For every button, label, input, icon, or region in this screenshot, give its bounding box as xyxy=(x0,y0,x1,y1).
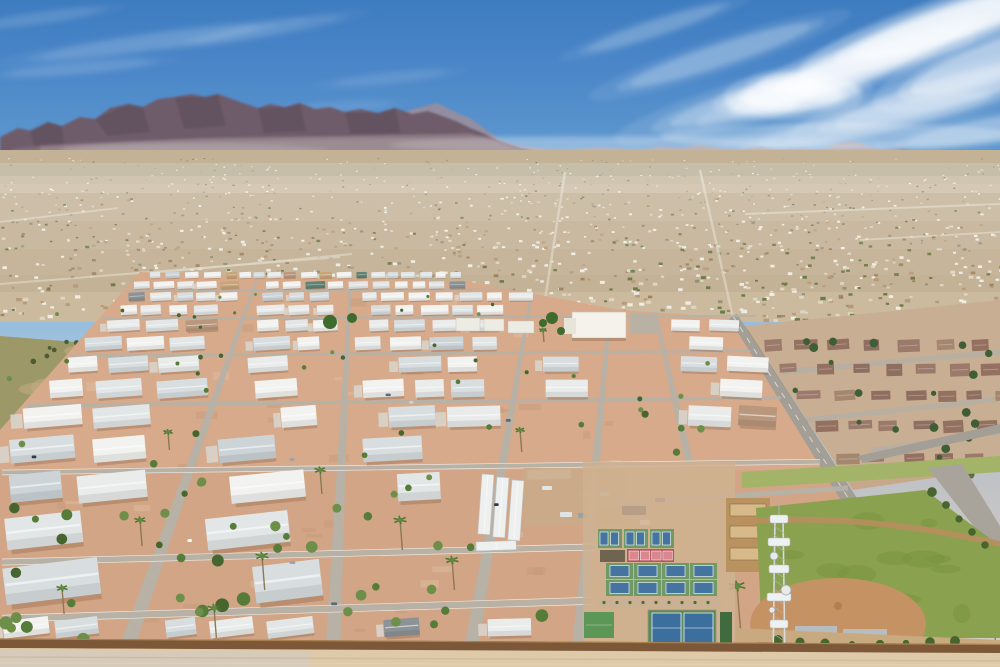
tree xyxy=(391,617,401,627)
mobile-home xyxy=(68,356,98,375)
mobile-home xyxy=(727,356,769,375)
tree xyxy=(330,350,334,354)
house xyxy=(871,391,890,400)
mountain-shadow-facet xyxy=(175,94,226,129)
tree xyxy=(578,422,584,428)
house xyxy=(937,339,955,350)
storage-building xyxy=(476,541,516,551)
tree xyxy=(525,370,529,374)
pitchers-mound xyxy=(834,602,842,610)
tree xyxy=(433,343,437,347)
tree xyxy=(64,359,69,364)
house xyxy=(796,390,820,399)
mobile-home xyxy=(301,272,317,280)
community-building xyxy=(484,319,504,331)
vehicle xyxy=(542,486,552,490)
mobile-home xyxy=(196,292,216,302)
cloud xyxy=(747,69,834,100)
tree xyxy=(176,593,185,602)
tree xyxy=(218,296,221,299)
mobile-home xyxy=(150,292,171,303)
house xyxy=(834,390,855,402)
tree xyxy=(673,449,680,456)
car xyxy=(290,458,294,461)
tree xyxy=(971,419,979,427)
tree xyxy=(641,411,648,418)
mobile-home xyxy=(254,378,298,401)
tree xyxy=(941,444,950,453)
mobile-home xyxy=(310,292,330,302)
mobile-home xyxy=(348,281,368,290)
house xyxy=(836,453,859,464)
pickleball-court xyxy=(663,532,671,545)
mobile-home xyxy=(126,336,164,353)
tree xyxy=(467,543,475,551)
dirt-patch xyxy=(134,505,150,511)
tree xyxy=(572,374,576,378)
antenna-array xyxy=(769,565,789,573)
shrub xyxy=(628,601,631,604)
tree xyxy=(21,621,33,633)
tree xyxy=(177,554,186,563)
tree xyxy=(391,491,398,498)
tree xyxy=(969,370,978,379)
car xyxy=(188,539,192,542)
mobile-home xyxy=(204,272,221,280)
tree xyxy=(427,585,437,595)
tree xyxy=(477,312,481,316)
tree xyxy=(364,512,373,521)
tree xyxy=(195,607,204,616)
mobile-home xyxy=(371,272,385,279)
mobile-home xyxy=(267,272,281,280)
mobile-home xyxy=(165,617,197,640)
tree xyxy=(219,354,223,358)
mobile-home xyxy=(9,470,64,506)
tree xyxy=(199,326,202,329)
tree xyxy=(233,311,236,314)
shrub xyxy=(602,601,605,604)
tree xyxy=(204,388,209,393)
tree xyxy=(433,541,443,551)
tree xyxy=(405,485,412,492)
car xyxy=(290,561,296,563)
pink-court xyxy=(663,551,673,560)
house xyxy=(950,363,971,376)
tree xyxy=(399,430,405,436)
mobile-home xyxy=(355,336,381,352)
mobile-home xyxy=(337,272,352,280)
tree xyxy=(193,315,197,319)
mobile-home xyxy=(390,336,422,352)
mountain-shadow-facet xyxy=(30,122,64,146)
house xyxy=(779,363,796,373)
tree xyxy=(931,391,936,396)
dirt-patch xyxy=(605,421,613,426)
tree xyxy=(197,480,204,487)
house xyxy=(981,363,1000,376)
tree xyxy=(61,509,72,520)
tree xyxy=(829,338,837,346)
tree xyxy=(177,313,181,317)
building-shadow xyxy=(572,338,626,341)
tree xyxy=(855,389,863,397)
mobile-home xyxy=(395,305,413,317)
mobile-home xyxy=(420,272,432,279)
car xyxy=(506,419,511,422)
tree xyxy=(332,504,341,513)
car xyxy=(32,455,37,458)
pickleball-court xyxy=(666,566,685,577)
tree xyxy=(254,293,257,296)
tree xyxy=(237,592,250,605)
tree xyxy=(539,319,547,327)
antenna-array xyxy=(770,620,788,628)
tree xyxy=(230,523,237,530)
tree xyxy=(557,327,565,335)
mobile-home xyxy=(194,304,219,316)
antenna-array xyxy=(768,538,790,546)
mobile-home xyxy=(156,378,208,402)
bush xyxy=(955,515,962,522)
tree xyxy=(372,583,380,591)
mobile-home xyxy=(738,405,777,430)
atmospheric-haze xyxy=(0,221,1000,249)
mobile-home xyxy=(177,281,194,290)
tree xyxy=(67,599,75,607)
tree xyxy=(306,541,318,553)
tree xyxy=(678,425,685,432)
mobile-home xyxy=(671,319,700,333)
mobile-home xyxy=(262,292,283,303)
pickleball-court xyxy=(638,583,657,594)
mobile-home xyxy=(362,292,377,302)
tree xyxy=(212,555,224,567)
tree xyxy=(11,568,21,578)
house xyxy=(815,420,838,432)
tree xyxy=(803,338,810,345)
house xyxy=(906,390,927,400)
shrub xyxy=(667,601,670,604)
tree xyxy=(869,339,878,348)
mobile-home xyxy=(397,472,441,505)
bush xyxy=(942,501,950,509)
shrub xyxy=(706,601,709,604)
pickleball-court xyxy=(610,566,629,577)
tree xyxy=(356,590,367,601)
community-building xyxy=(508,321,534,333)
shrub xyxy=(680,601,683,604)
mobile-home xyxy=(689,336,723,352)
mobile-home xyxy=(709,319,739,333)
tree xyxy=(7,623,16,632)
vehicle xyxy=(560,512,572,517)
pickleball-court xyxy=(652,532,660,545)
mobile-home xyxy=(253,272,264,280)
pickleball-court xyxy=(611,532,619,545)
tree xyxy=(474,358,478,362)
tree xyxy=(11,612,22,623)
tree xyxy=(31,359,37,365)
tree xyxy=(546,312,558,324)
tree xyxy=(343,607,352,616)
mobile-home xyxy=(436,292,453,302)
dirt-patch xyxy=(302,528,316,532)
dirt-patch xyxy=(57,501,66,508)
pink-court xyxy=(652,551,662,560)
mobile-home xyxy=(371,305,391,317)
house xyxy=(966,390,982,399)
car xyxy=(409,401,413,404)
mobile-home xyxy=(415,379,444,400)
dirt-patch xyxy=(534,567,543,574)
mobile-home xyxy=(477,305,503,316)
mobile-home xyxy=(381,292,404,302)
tree xyxy=(150,460,158,468)
tree xyxy=(456,379,461,384)
dirt-patch xyxy=(242,324,253,332)
house xyxy=(853,364,869,373)
pickleball-court xyxy=(694,583,713,594)
tree xyxy=(829,360,834,365)
mobile-home xyxy=(429,281,445,290)
tree xyxy=(426,295,429,298)
dirt-patch xyxy=(143,618,159,623)
tree xyxy=(48,346,52,350)
mobile-home xyxy=(239,272,251,280)
clubhouse-wing xyxy=(564,318,576,334)
grass-patch xyxy=(902,551,944,568)
dirt-patch xyxy=(64,501,79,504)
dirt-patch xyxy=(519,404,541,410)
tree xyxy=(491,303,494,306)
tree xyxy=(196,371,200,375)
bush xyxy=(927,487,937,497)
tree xyxy=(857,420,862,425)
house xyxy=(886,364,902,376)
tree xyxy=(302,365,307,370)
mobile-home xyxy=(150,272,161,280)
bush xyxy=(968,528,976,536)
tree xyxy=(283,533,290,540)
hedge xyxy=(720,612,732,646)
mobile-home xyxy=(356,272,367,279)
tree xyxy=(809,343,818,352)
tree xyxy=(441,606,449,614)
grass-patch xyxy=(932,565,961,574)
mobile-home xyxy=(546,380,588,400)
microwave-dish xyxy=(770,552,778,560)
mobile-home xyxy=(305,281,325,290)
tree xyxy=(400,309,403,312)
pickleball-court xyxy=(600,532,608,545)
tree xyxy=(430,620,438,628)
mobile-home xyxy=(452,305,473,316)
tree xyxy=(678,394,683,399)
tree xyxy=(273,544,282,553)
mobile-home xyxy=(448,356,478,374)
mobile-home xyxy=(185,272,199,280)
dirt-patch xyxy=(432,567,453,573)
tree xyxy=(160,509,169,518)
cloud xyxy=(310,61,470,95)
atmospheric-haze xyxy=(0,193,1000,221)
tree xyxy=(175,362,179,366)
tree xyxy=(362,452,368,458)
mobile-home xyxy=(509,292,533,302)
pickleball-court xyxy=(666,583,685,594)
mobile-home xyxy=(247,355,288,375)
mobile-home xyxy=(185,319,218,334)
tree xyxy=(697,425,704,432)
pink-court xyxy=(629,551,639,560)
tree xyxy=(486,424,492,430)
tree xyxy=(52,348,57,353)
mobile-home xyxy=(680,356,717,374)
tree xyxy=(19,441,26,448)
mobile-home xyxy=(95,378,142,401)
tree xyxy=(937,455,943,461)
mobile-home xyxy=(449,281,465,290)
pickleball-court xyxy=(638,566,657,577)
mobile-home xyxy=(165,272,180,280)
aerial-photo xyxy=(0,0,1000,667)
tree xyxy=(341,355,345,359)
tree xyxy=(536,609,549,622)
dirt-patch xyxy=(583,431,590,438)
tree xyxy=(959,341,967,349)
mobile-home xyxy=(256,304,284,317)
tree xyxy=(192,430,199,437)
atmospheric-haze xyxy=(0,163,1000,193)
mobile-home xyxy=(401,272,415,279)
antenna-array xyxy=(770,515,788,523)
house xyxy=(764,339,782,352)
shrub xyxy=(693,601,696,604)
tree xyxy=(119,511,128,520)
mobile-home xyxy=(153,281,174,290)
dirt-patch xyxy=(354,629,365,632)
tree xyxy=(892,426,899,433)
mobile-home xyxy=(92,404,151,432)
tree xyxy=(270,521,280,531)
tree xyxy=(45,354,50,359)
house xyxy=(972,339,989,351)
bush xyxy=(981,541,988,548)
mobile-home xyxy=(108,355,149,375)
tree xyxy=(56,534,67,545)
mobile-home xyxy=(49,378,83,400)
tree xyxy=(347,313,357,323)
grass-patch xyxy=(953,604,970,623)
grass-patch xyxy=(816,563,849,578)
mobile-home xyxy=(487,292,502,302)
tree xyxy=(637,396,642,401)
pickleball-court xyxy=(637,532,645,545)
mobile-home xyxy=(394,319,425,333)
tree xyxy=(215,598,229,612)
grass-patch xyxy=(921,519,938,528)
mobile-home xyxy=(226,272,237,280)
car xyxy=(331,602,337,605)
dirt-patch xyxy=(334,377,342,380)
mobile-home xyxy=(369,319,389,333)
tree xyxy=(793,388,798,393)
tree xyxy=(323,315,337,329)
cloud xyxy=(0,0,127,39)
atmospheric-haze xyxy=(0,249,1000,275)
mobile-home xyxy=(128,292,145,302)
clubhouse-building xyxy=(572,312,626,338)
house xyxy=(938,391,956,402)
mobile-home xyxy=(84,336,122,353)
mobile-home xyxy=(472,337,497,352)
tree xyxy=(985,350,992,357)
house xyxy=(995,390,1000,400)
mobile-home xyxy=(436,272,446,279)
house xyxy=(897,339,920,352)
tree xyxy=(930,423,939,432)
mobile-home xyxy=(283,281,301,290)
community-building xyxy=(456,318,480,331)
tree xyxy=(32,516,39,523)
shrub xyxy=(615,601,618,604)
mobile-home xyxy=(140,304,161,316)
tree xyxy=(9,503,20,514)
aerial-scene-canvas xyxy=(0,0,1000,667)
mobile-home xyxy=(328,281,343,290)
tree xyxy=(7,376,12,381)
dirt-patch xyxy=(306,534,322,537)
car xyxy=(386,394,391,396)
mobile-home xyxy=(450,272,461,279)
mobile-home xyxy=(413,281,426,290)
pickleball-court xyxy=(626,532,634,545)
pink-court xyxy=(640,551,650,560)
shrub xyxy=(641,601,644,604)
house xyxy=(817,364,834,375)
microwave-dish xyxy=(769,607,775,613)
mobile-home xyxy=(169,336,205,353)
mobile-home xyxy=(134,281,150,290)
tree xyxy=(55,312,59,316)
house xyxy=(943,420,964,433)
tree xyxy=(426,474,432,480)
tree xyxy=(198,355,203,360)
mobile-home xyxy=(92,435,146,466)
mobile-home xyxy=(257,319,279,333)
mobile-home xyxy=(266,281,279,290)
shrub xyxy=(654,601,657,604)
car xyxy=(494,503,499,506)
tree xyxy=(962,408,971,417)
mobile-home xyxy=(285,319,308,333)
clubhouse-parking xyxy=(630,314,658,334)
mobile-home xyxy=(421,305,449,317)
mobile-home xyxy=(220,281,239,290)
tree xyxy=(121,309,125,313)
house xyxy=(916,364,936,374)
mobile-home xyxy=(146,319,179,334)
mobile-home xyxy=(395,281,408,290)
tree xyxy=(181,491,187,497)
pickleball-court xyxy=(610,583,629,594)
mobile-home xyxy=(373,281,390,290)
pickleball-court xyxy=(694,566,713,577)
mobile-home xyxy=(362,435,423,465)
tree xyxy=(638,407,643,412)
tree xyxy=(156,542,163,549)
